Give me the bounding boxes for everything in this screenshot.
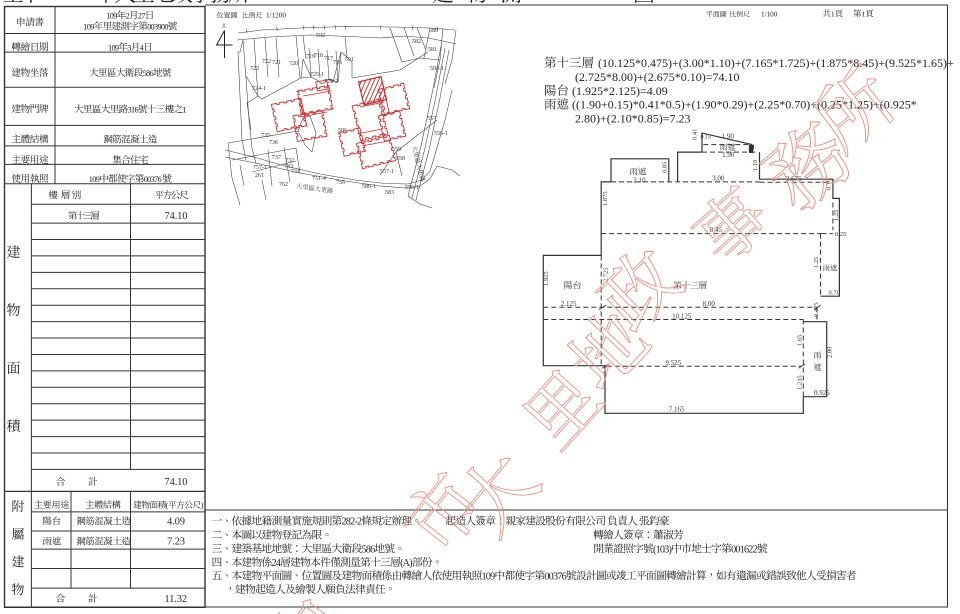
svg-text:(1.925*2.125)=4.09: (1.925*2.125)=4.09: [572, 84, 668, 98]
svg-text:(A): (A): [400, 558, 412, 569]
svg-text:762: 762: [279, 182, 288, 188]
svg-text:722: 722: [262, 59, 271, 65]
svg-text:2.80)+(2.10*0.85)=7.23: 2.80)+(2.10*0.85)=7.23: [575, 112, 691, 126]
svg-text:1/100: 1/100: [761, 11, 778, 19]
svg-text:00376: 00376: [544, 571, 566, 582]
svg-text:7.165: 7.165: [669, 406, 685, 414]
svg-text:24: 24: [272, 558, 281, 569]
svg-text:1: 1: [182, 105, 186, 114]
svg-text:557: 557: [427, 116, 436, 122]
svg-text:751-4: 751-4: [312, 176, 326, 182]
svg-text:0.15: 0.15: [701, 135, 712, 141]
svg-text:723: 723: [250, 66, 259, 72]
svg-text:(: (: [166, 501, 169, 510]
svg-text:591: 591: [345, 57, 354, 63]
svg-text:2.125: 2.125: [561, 300, 577, 308]
svg-text:1: 1: [831, 10, 835, 19]
svg-text:586-1: 586-1: [362, 184, 376, 190]
svg-text:580: 580: [429, 28, 438, 34]
svg-text:74.10: 74.10: [165, 211, 188, 222]
svg-text:737: 737: [272, 155, 281, 161]
svg-text:4.09: 4.09: [167, 516, 185, 527]
svg-text:556-1: 556-1: [405, 185, 419, 191]
svg-text:558: 558: [396, 156, 405, 162]
svg-text:316: 316: [128, 105, 139, 114]
svg-text:0.25: 0.25: [835, 231, 846, 238]
svg-text:1.10: 1.10: [752, 160, 759, 171]
svg-text:11.32: 11.32: [165, 594, 188, 605]
svg-text:731: 731: [291, 169, 300, 175]
svg-text:720: 720: [289, 61, 298, 67]
svg-text:721: 721: [272, 60, 281, 66]
svg-text:7.23: 7.23: [167, 537, 185, 548]
svg-text:1.90: 1.90: [722, 133, 735, 141]
svg-text:582: 582: [412, 39, 421, 45]
svg-text:0.70: 0.70: [829, 290, 840, 297]
svg-text:0.925: 0.925: [814, 389, 830, 397]
svg-text:556-1: 556-1: [434, 131, 448, 137]
svg-text:3: 3: [127, 43, 131, 52]
svg-text:2.10: 2.10: [633, 177, 646, 185]
svg-text:592: 592: [316, 33, 325, 39]
svg-text:109: 109: [89, 175, 100, 184]
svg-text:1.875: 1.875: [602, 191, 609, 206]
svg-text:00376: 00376: [144, 175, 162, 184]
svg-text:109: 109: [482, 571, 496, 582]
svg-text:583: 583: [385, 190, 394, 196]
svg-text:1.25: 1.25: [833, 210, 840, 221]
svg-text:((1.90+0.15)*0.41*0.5)+(1.90*0: ((1.90+0.15)*0.41*0.5)+(1.90*0.29)+(2.25…: [572, 98, 917, 112]
svg-text:): ): [201, 501, 204, 510]
svg-text:282-2: 282-2: [342, 517, 362, 528]
svg-text:8.00: 8.00: [703, 300, 716, 308]
svg-text:4: 4: [140, 43, 145, 52]
svg-text:1.90: 1.90: [722, 151, 735, 159]
svg-text:725-1: 725-1: [310, 72, 324, 78]
svg-text:557-1: 557-1: [380, 169, 394, 175]
svg-text:0.41: 0.41: [692, 129, 699, 140]
svg-text:(103): (103): [653, 544, 671, 555]
svg-text:586: 586: [362, 544, 376, 555]
svg-text:0.475: 0.475: [813, 302, 820, 317]
svg-text:(2.725*8.00)+(2.675*0.10)=74.1: (2.725*8.00)+(2.675*0.10)=74.10: [575, 70, 740, 84]
svg-text:261: 261: [255, 173, 264, 179]
svg-text:001622: 001622: [731, 544, 757, 555]
svg-text:756: 756: [336, 180, 345, 186]
svg-text:1.25: 1.25: [813, 257, 820, 268]
svg-text:1.65: 1.65: [797, 335, 804, 346]
svg-text:736: 736: [269, 140, 278, 146]
svg-text:1.925: 1.925: [543, 271, 550, 286]
svg-text:581: 581: [428, 47, 437, 53]
svg-text:1.235: 1.235: [797, 375, 804, 390]
svg-text:27: 27: [138, 12, 145, 21]
svg-text:003900: 003900: [147, 22, 168, 31]
svg-text:591-1: 591-1: [430, 66, 444, 72]
svg-text:74.10: 74.10: [165, 477, 188, 488]
svg-text:109: 109: [106, 12, 117, 21]
svg-text:716: 716: [333, 60, 342, 66]
svg-text:9.525: 9.525: [665, 359, 681, 367]
svg-text:2: 2: [126, 12, 130, 21]
svg-text:735: 735: [261, 133, 270, 139]
svg-text:0.85: 0.85: [661, 162, 668, 173]
svg-text:109: 109: [108, 43, 119, 52]
svg-text:1/1200: 1/1200: [266, 12, 286, 20]
svg-text:718: 718: [314, 53, 323, 59]
svg-text:2.80: 2.80: [827, 347, 834, 358]
svg-text:757-1: 757-1: [253, 165, 267, 171]
svg-text:(10.125*0.475)+(3.00*1.10)+(7.: (10.125*0.475)+(3.00*1.10)+(7.165*1.725)…: [598, 56, 954, 70]
svg-text:10.125: 10.125: [672, 312, 692, 320]
svg-text:717: 717: [324, 56, 333, 62]
svg-text:109: 109: [83, 22, 94, 31]
svg-text:3.00: 3.00: [712, 174, 725, 182]
svg-text:586: 586: [143, 69, 154, 78]
svg-text:724-1: 724-1: [252, 86, 266, 92]
svg-text:1: 1: [862, 10, 866, 19]
